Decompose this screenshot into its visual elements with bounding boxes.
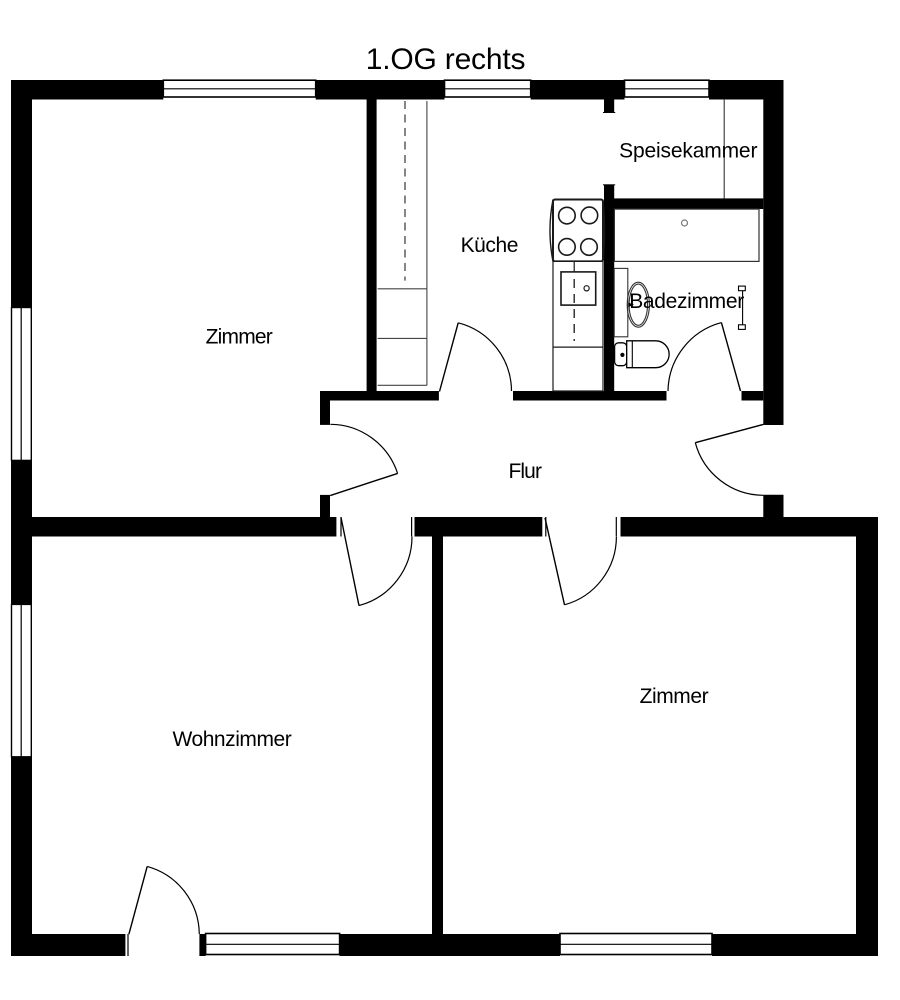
svg-text:Küche: Küche <box>461 234 519 257</box>
svg-text:Badezimmer: Badezimmer <box>629 290 744 313</box>
svg-text:Zimmer: Zimmer <box>640 685 709 708</box>
svg-text:Wohnzimmer: Wohnzimmer <box>173 728 292 751</box>
svg-text:Zimmer: Zimmer <box>206 325 273 348</box>
svg-text:Flur: Flur <box>508 460 542 483</box>
svg-text:Speisekammer: Speisekammer <box>619 140 757 163</box>
svg-text:1.OG rechts: 1.OG rechts <box>366 43 526 76</box>
